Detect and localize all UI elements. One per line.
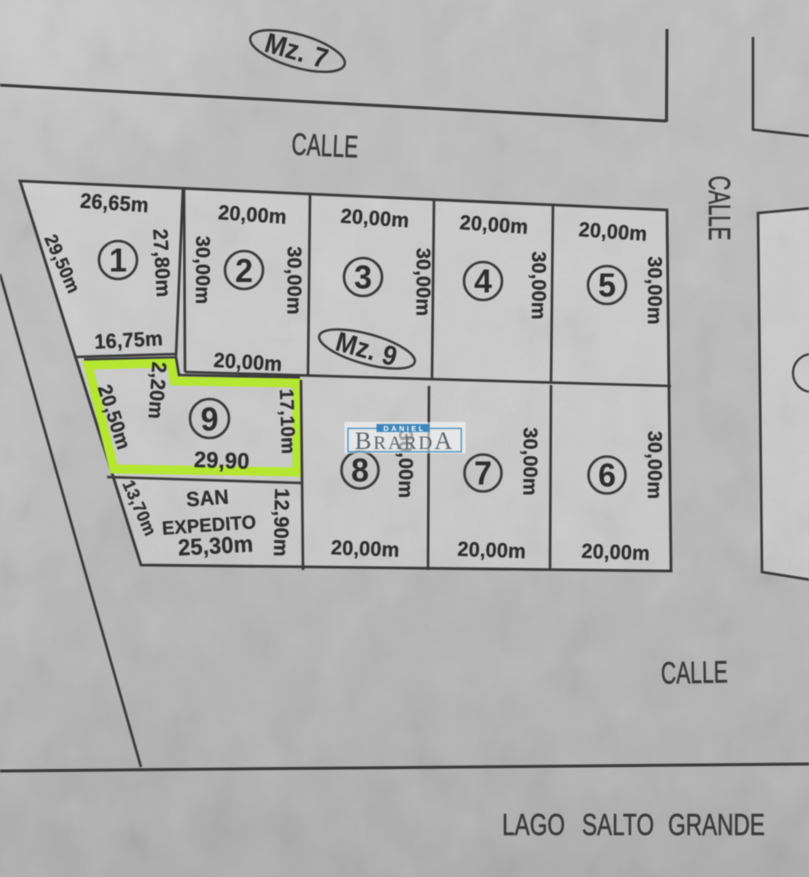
- svg-text:LAGO: LAGO: [502, 806, 565, 841]
- svg-text:GRANDE: GRANDE: [668, 806, 765, 841]
- svg-text:20,00m: 20,00m: [213, 350, 283, 376]
- svg-text:4: 4: [474, 263, 492, 300]
- svg-text:9: 9: [201, 401, 219, 438]
- svg-text:20,00m: 20,00m: [457, 539, 526, 564]
- svg-text:17,10m: 17,10m: [275, 389, 299, 455]
- svg-text:20,00m: 20,00m: [459, 212, 529, 239]
- svg-text:25,30m: 25,30m: [177, 531, 253, 561]
- svg-text:CALLE: CALLE: [661, 654, 728, 690]
- svg-text:SALTO: SALTO: [582, 806, 654, 841]
- svg-text:29,90: 29,90: [194, 447, 250, 474]
- svg-text:30,00m: 30,00m: [527, 251, 549, 320]
- svg-text:6: 6: [598, 457, 616, 494]
- svg-text:30,00m: 30,00m: [411, 248, 433, 317]
- svg-text:BRARDA: BRARDA: [355, 428, 455, 455]
- svg-text:5: 5: [598, 267, 616, 304]
- svg-text:20,00m: 20,00m: [340, 205, 410, 232]
- svg-text:20,00m: 20,00m: [581, 541, 650, 566]
- svg-text:30,00m: 30,00m: [518, 427, 540, 496]
- svg-text:20,00m: 20,00m: [331, 537, 400, 562]
- svg-text:1: 1: [109, 242, 127, 279]
- svg-text:CALLE: CALLE: [702, 176, 737, 241]
- svg-text:30,00m: 30,00m: [191, 236, 213, 305]
- svg-text:12,90m: 12,90m: [269, 488, 293, 557]
- svg-text:7: 7: [474, 455, 492, 492]
- svg-text:16,75m: 16,75m: [94, 328, 164, 354]
- svg-text:30,00m: 30,00m: [282, 246, 304, 315]
- svg-text:30,00m: 30,00m: [643, 431, 665, 500]
- svg-text:DANIEL: DANIEL: [383, 424, 425, 433]
- svg-text:20,00m: 20,00m: [578, 219, 648, 246]
- svg-text:30,00m: 30,00m: [643, 256, 665, 325]
- svg-text:8: 8: [351, 452, 369, 489]
- svg-text:26,65m: 26,65m: [79, 189, 149, 217]
- svg-text:CALLE: CALLE: [291, 127, 359, 165]
- svg-text:2: 2: [235, 253, 253, 290]
- svg-text:SAN: SAN: [186, 486, 230, 511]
- svg-text:3: 3: [354, 259, 372, 296]
- svg-text:20,00m: 20,00m: [217, 202, 287, 229]
- svg-text:2,20m: 2,20m: [143, 361, 169, 420]
- svg-text:27,80m: 27,80m: [148, 228, 174, 298]
